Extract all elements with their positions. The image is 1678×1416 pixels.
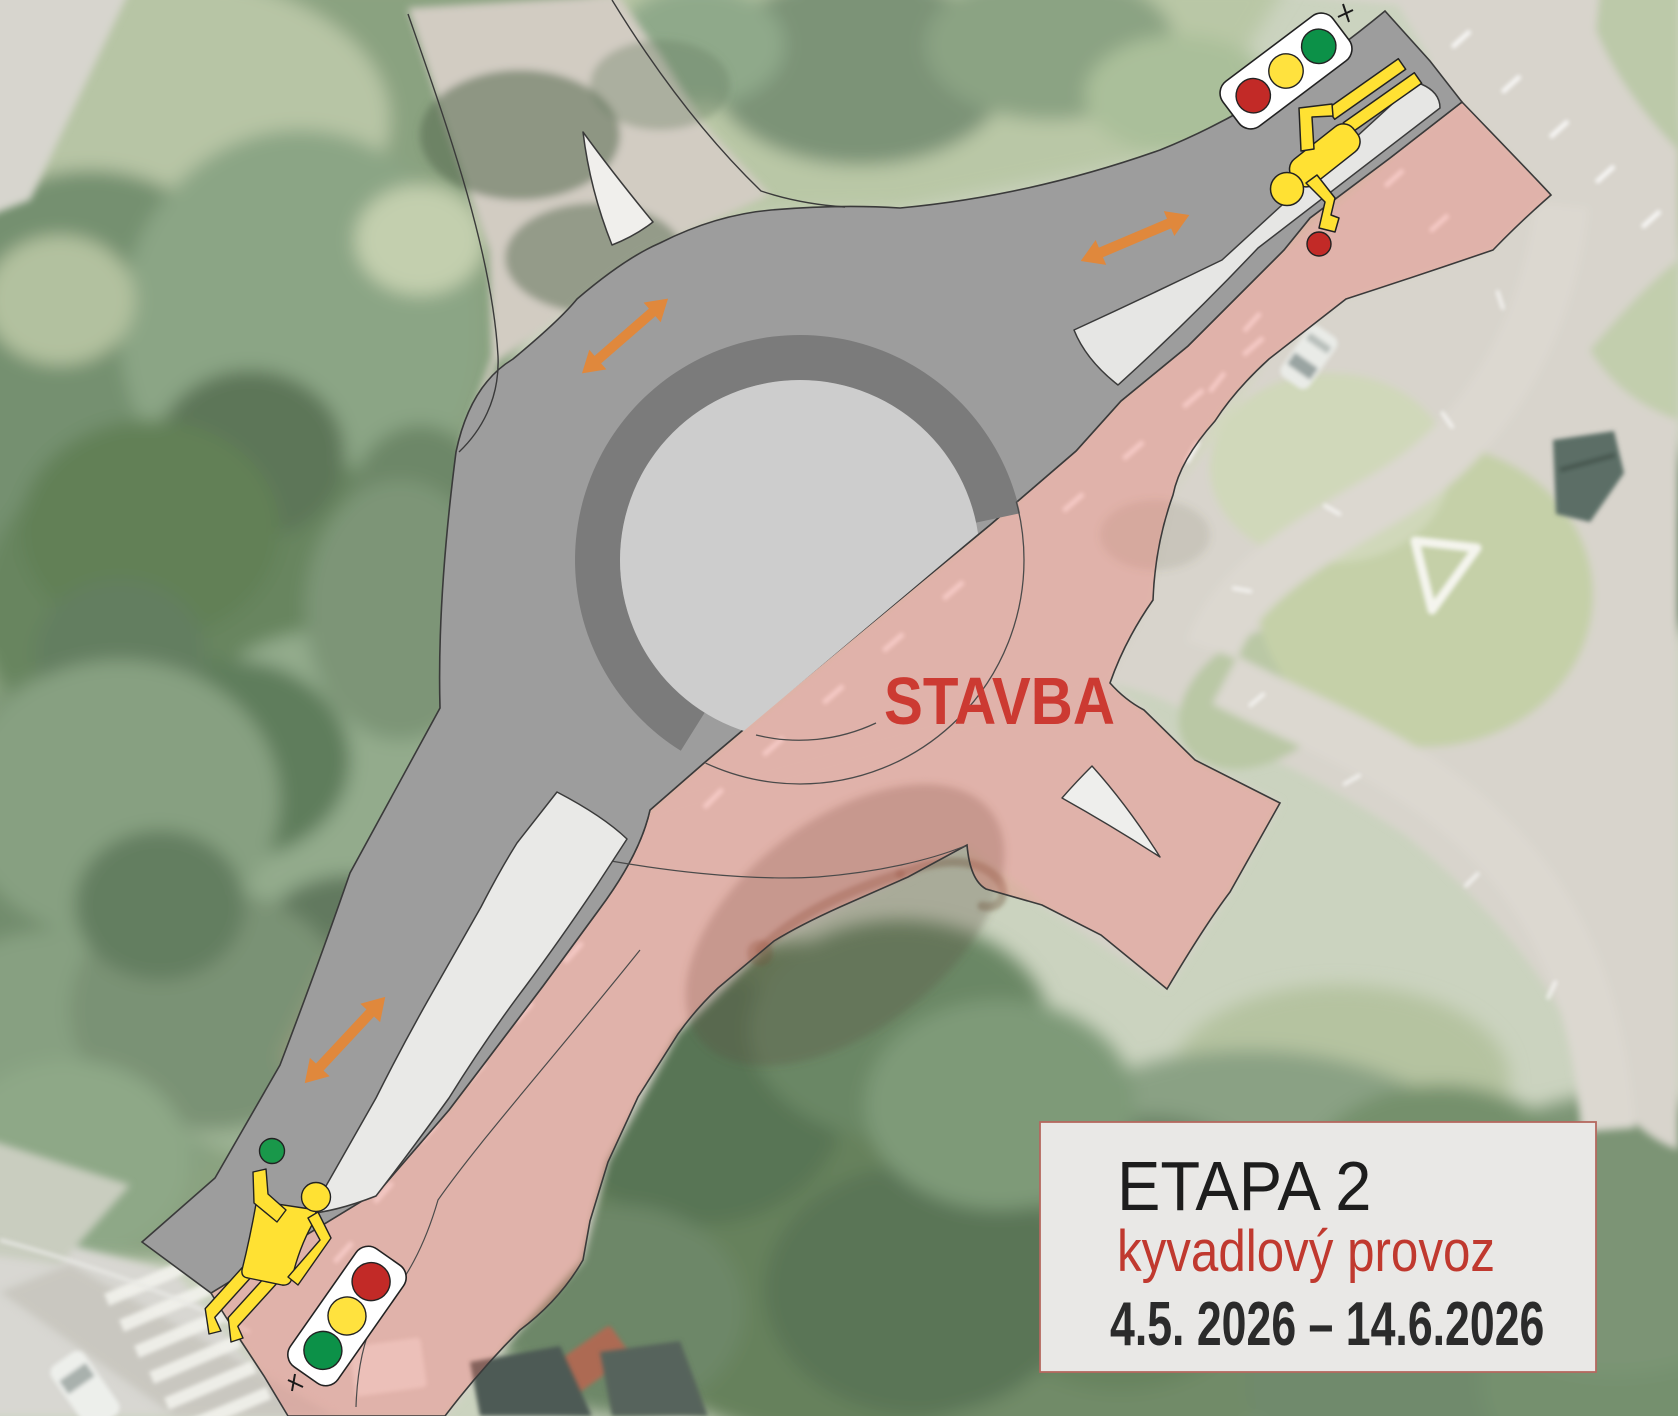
svg-text:ETAPA 2: ETAPA 2	[1117, 1148, 1371, 1226]
svg-text:4.5. 2026 – 14.6.2026: 4.5. 2026 – 14.6.2026	[1110, 1290, 1544, 1359]
svg-text:kyvadlový provoz: kyvadlový provoz	[1117, 1219, 1495, 1284]
svg-text:STAVBA: STAVBA	[884, 664, 1115, 739]
